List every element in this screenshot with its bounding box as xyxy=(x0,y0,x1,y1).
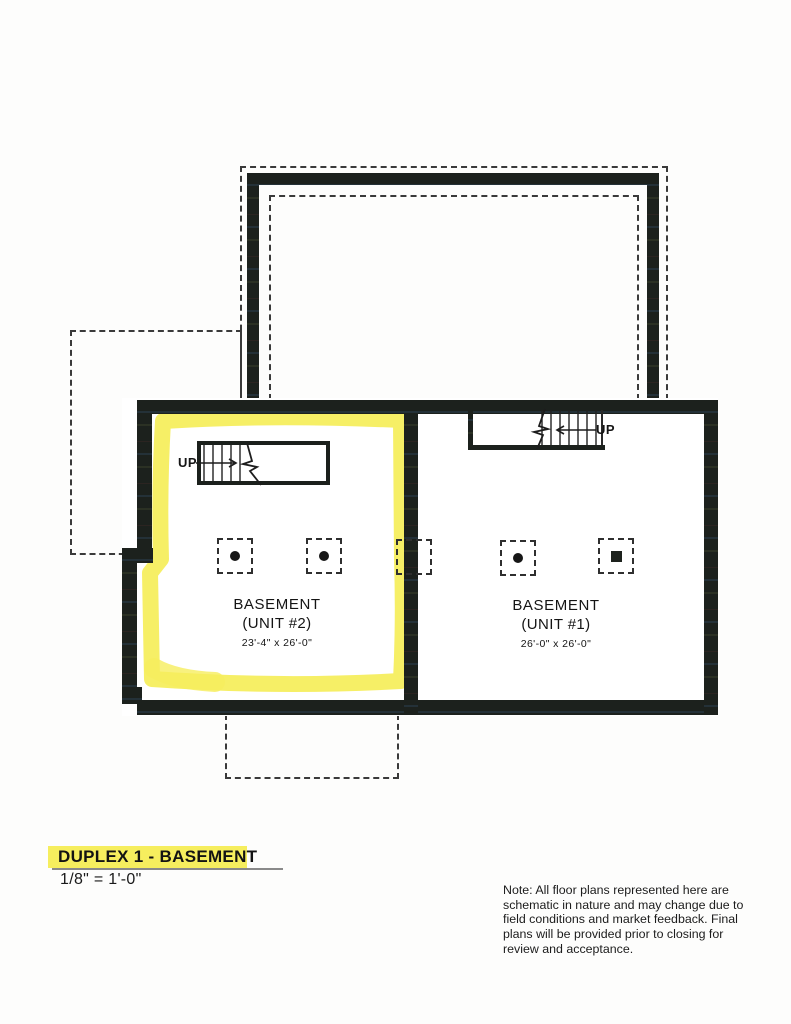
disclaimer-note: Note: All floor plans represented here a… xyxy=(503,883,755,956)
column-post-icon xyxy=(319,551,329,561)
unit2-room-label: BASEMENT (UNIT #2) 23'-4" x 26'-0" xyxy=(197,596,357,649)
unit2-room-name: BASEMENT xyxy=(197,596,357,613)
upper-structure-inner-dashed-outline xyxy=(269,195,639,400)
wall-west-foot xyxy=(122,687,142,703)
column-symbol xyxy=(500,540,536,576)
unit1-stair-wall-left xyxy=(468,408,473,450)
unit1-stair-wall-bottom xyxy=(468,445,605,450)
wall-west-upper xyxy=(137,400,152,563)
unit2-stair-enclosure xyxy=(197,441,330,485)
drawing-scale: 1/8" = 1'-0" xyxy=(60,871,142,889)
unit1-up-label: UP xyxy=(596,422,615,437)
unit1-unit-number: (UNIT #1) xyxy=(476,616,636,633)
column-post-icon xyxy=(611,551,622,562)
page-title: DUPLEX 1 - BASEMENT xyxy=(58,847,257,867)
wall-west-lower xyxy=(122,548,137,704)
rear-deck-dashed-outline xyxy=(225,714,399,779)
unit1-dimensions: 26'-0" x 26'-0" xyxy=(476,638,636,650)
wall-east xyxy=(704,400,718,715)
floor-plan-page: UP UP BASEMENT (UNIT #2) 23'-4" x 26'-0"… xyxy=(0,0,791,1024)
unit2-up-label: UP xyxy=(178,455,197,470)
wall-north xyxy=(137,400,718,414)
column-symbol-party-wall xyxy=(396,539,432,575)
title-underline xyxy=(52,868,283,870)
column-post-icon xyxy=(230,551,240,561)
unit2-dimensions: 23'-4" x 26'-0" xyxy=(197,637,357,649)
unit1-room-name: BASEMENT xyxy=(476,597,636,614)
upper-structure-wall-left xyxy=(247,173,259,398)
unit2-unit-number: (UNIT #2) xyxy=(197,615,357,632)
unit1-room-label: BASEMENT (UNIT #1) 26'-0" x 26'-0" xyxy=(476,597,636,650)
column-symbol xyxy=(306,538,342,574)
column-post-icon xyxy=(513,553,523,563)
column-symbol xyxy=(598,538,634,574)
upper-structure-wall-top xyxy=(247,173,659,185)
column-symbol xyxy=(217,538,253,574)
wall-south xyxy=(137,700,718,715)
upper-structure-wall-right xyxy=(647,173,659,398)
